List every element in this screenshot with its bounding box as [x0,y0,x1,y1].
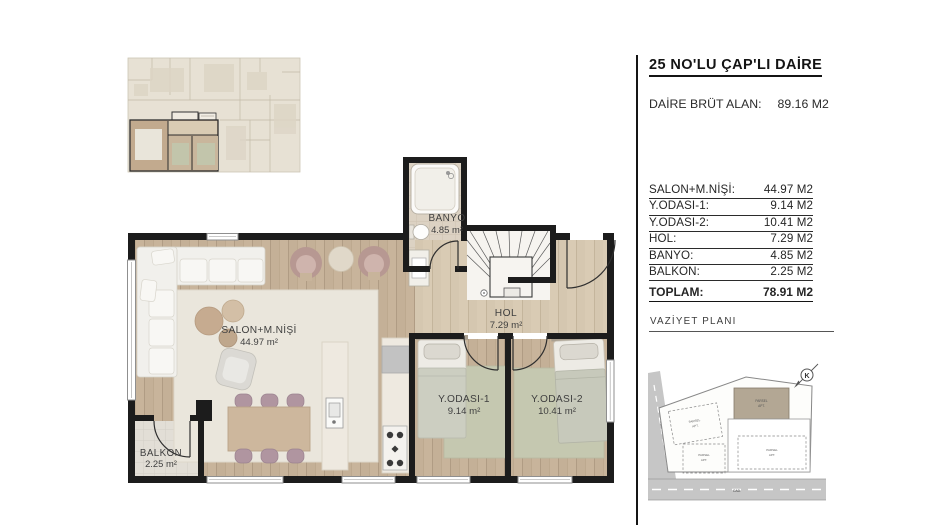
row-value: 7.29 M2 [770,232,813,245]
total-label: TOPLAM: [649,285,703,301]
north-label: K [804,373,809,380]
row-value: 2.25 M2 [770,265,813,278]
north-arrow-icon: K [794,364,818,388]
gross-area-line: DAİRE BRÜT ALAN: 89.16 M2 [649,97,829,111]
bathtub [411,164,459,214]
site-parcel-c: PARSEL APT. [728,419,810,472]
row-value: 10.41 M2 [764,216,813,229]
table-row: BALKON: 2.25 M2 [649,265,813,281]
gross-area-value: 89.16 M2 [778,97,829,111]
hol-label: HOL [495,308,517,319]
row-label: HOL: [649,232,676,245]
bedroom2-label: Y.ODASI-2 [531,394,583,405]
site-plan: SOKAK CAD. PARSEL APT. PARSEL APT. PARSE… [648,364,826,500]
row-label: Y.ODASI-1: [649,199,709,212]
salon-label: SALON+M.NİŞİ [221,323,296,336]
key-plan-highlighted-unit [130,112,218,171]
table-row: Y.ODASI-1: 9.14 M2 [649,199,813,215]
panel-divider-line [636,55,638,525]
bedroom2-area: 10.41 m² [538,406,577,417]
parcel-label: PARSEL [698,453,710,457]
key-plan-thumbnail [128,58,300,172]
road-label: CAD. [733,489,741,493]
site-plan-rule [649,331,834,332]
bedroom1-label: Y.ODASI-1 [438,394,490,405]
table-row: BANYO: 4.85 M2 [649,249,813,265]
parcel-label: APT. [758,404,765,408]
row-value: 9.14 M2 [770,199,813,212]
row-value: 44.97 M2 [764,183,813,196]
row-label: BALKON: [649,265,700,278]
parcel-label: APT. [769,453,776,457]
banyo-label: BANYO [428,213,465,224]
dining-set [228,394,310,463]
stove [383,426,407,470]
banyo-area: 4.85 m² [431,224,463,235]
room-area-table: SALON+M.NİŞİ: 44.97 M2 Y.ODASI-1: 9.14 M… [649,183,813,281]
kitchen-island [322,342,348,470]
hol-area: 7.29 m² [490,320,523,331]
table-row: SALON+M.NİŞİ: 44.97 M2 [649,183,813,199]
side-table [329,247,354,272]
table-row: HOL: 7.29 M2 [649,232,813,248]
site-building-highlighted: PARSEL APT. [734,388,789,419]
row-label: Y.ODASI-2: [649,216,709,229]
toilet [409,225,429,240]
unit-title: 25 NO'LU ÇAP'LI DAİRE [649,57,822,77]
row-label: BANYO: [649,249,693,262]
balkon-area: 2.25 m² [145,458,177,469]
parcel-label: PARSEL [755,399,768,403]
staircase [467,231,550,300]
kitchen-counter [382,338,409,473]
row-value: 4.85 M2 [770,249,813,262]
gross-area-label: DAİRE BRÜT ALAN: [649,97,762,111]
main-floor-plan: SALON+M.NİŞİ 44.97 m² BANYO 4.85 m² HOL … [128,157,616,483]
row-label: SALON+M.NİŞİ: [649,183,735,196]
table-row: Y.ODASI-2: 10.41 M2 [649,216,813,232]
fridge [382,346,409,373]
page: SALON+M.NİŞİ 44.97 m² BANYO 4.85 m² HOL … [0,0,933,525]
total-value: 78.91 M2 [763,285,813,301]
parcel-label: APT. [701,458,708,462]
bed-1 [416,335,468,438]
bedroom1-area: 9.14 m² [448,406,481,417]
dining-table [228,407,310,451]
bed-2 [551,334,611,444]
total-row: TOPLAM: 78.91 M2 [649,285,813,302]
salon-area: 44.97 m² [240,337,279,348]
parcel-label: PARSEL [766,448,778,452]
site-plan-title: VAZİYET PLANI [650,316,737,327]
